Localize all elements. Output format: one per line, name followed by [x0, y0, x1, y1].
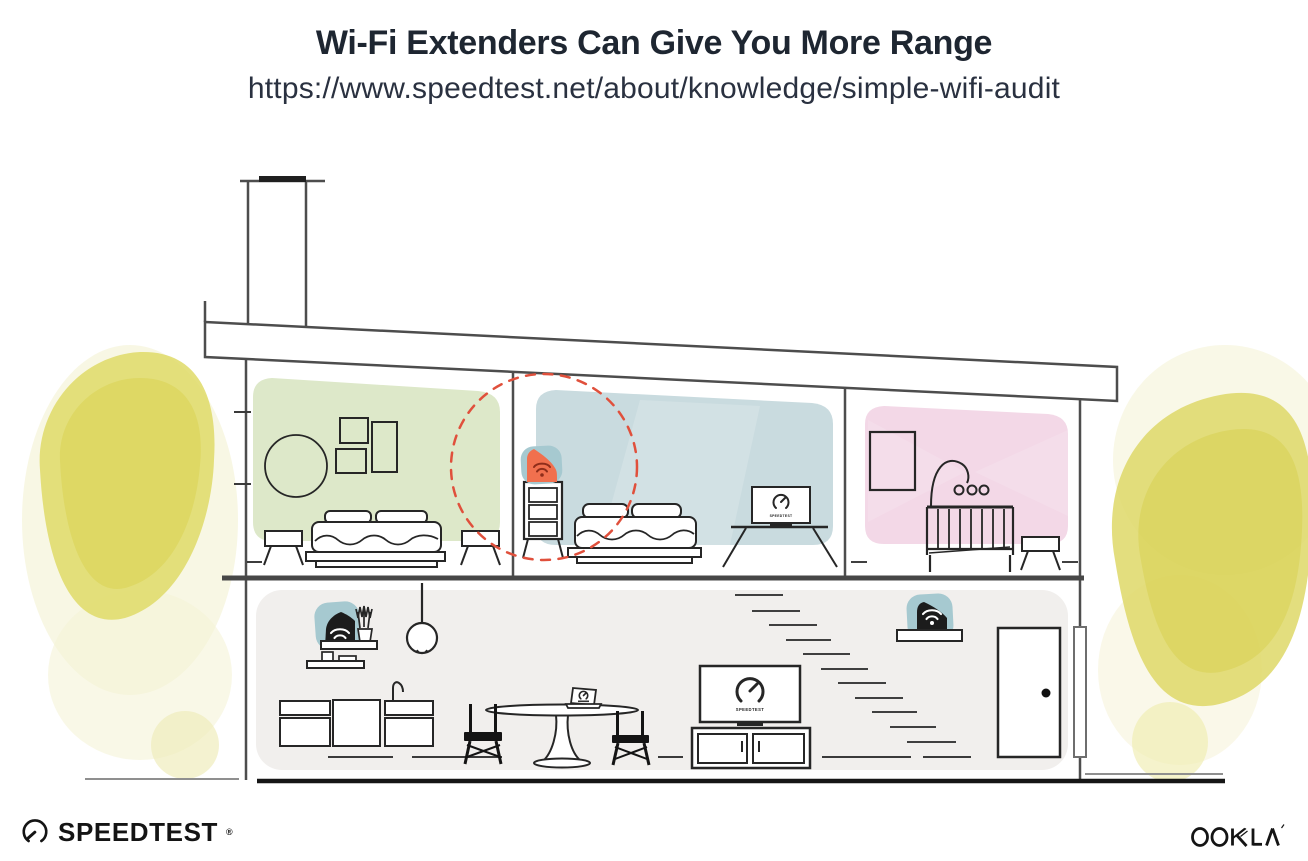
- bed: [306, 511, 445, 567]
- wall-ticks: [234, 412, 251, 484]
- house-illustration: SPEEDTEST: [0, 0, 1308, 861]
- chimney: [240, 176, 325, 338]
- table-top: [486, 705, 638, 716]
- front-door: [998, 628, 1060, 757]
- media-console: [692, 728, 810, 768]
- door-trim: [1074, 627, 1086, 757]
- registered-mark: ®: [226, 827, 233, 837]
- door-knob: [1042, 689, 1051, 698]
- stool: [1021, 537, 1060, 570]
- nightstand-left: [264, 531, 303, 565]
- shelf-upper: [321, 641, 377, 649]
- tv-screen: [700, 666, 800, 722]
- speedtest-gauge-icon: [20, 817, 50, 847]
- bed: [568, 504, 701, 563]
- ookla-logo: [1190, 822, 1290, 855]
- speedtest-wordmark: SPEEDTEST: [58, 817, 218, 847]
- shelf-lower: [307, 661, 364, 668]
- foliage-left: [22, 345, 238, 779]
- shelf: [897, 630, 962, 641]
- tv-label: SPEEDTEST: [736, 707, 765, 712]
- living-room-tv: SPEEDTEST: [700, 666, 800, 726]
- cup: [322, 652, 333, 661]
- ookla-wordmark: [1190, 822, 1290, 850]
- foliage-right: [1098, 345, 1308, 782]
- wifi-extender-bedroom: [520, 445, 563, 485]
- table-base: [534, 759, 590, 768]
- infographic-canvas: Wi-Fi Extenders Can Give You More Range …: [0, 0, 1308, 861]
- tv-label: SPEEDTEST: [770, 514, 793, 518]
- speedtest-logo: SPEEDTEST ®: [20, 817, 233, 847]
- dresser: [523, 482, 563, 558]
